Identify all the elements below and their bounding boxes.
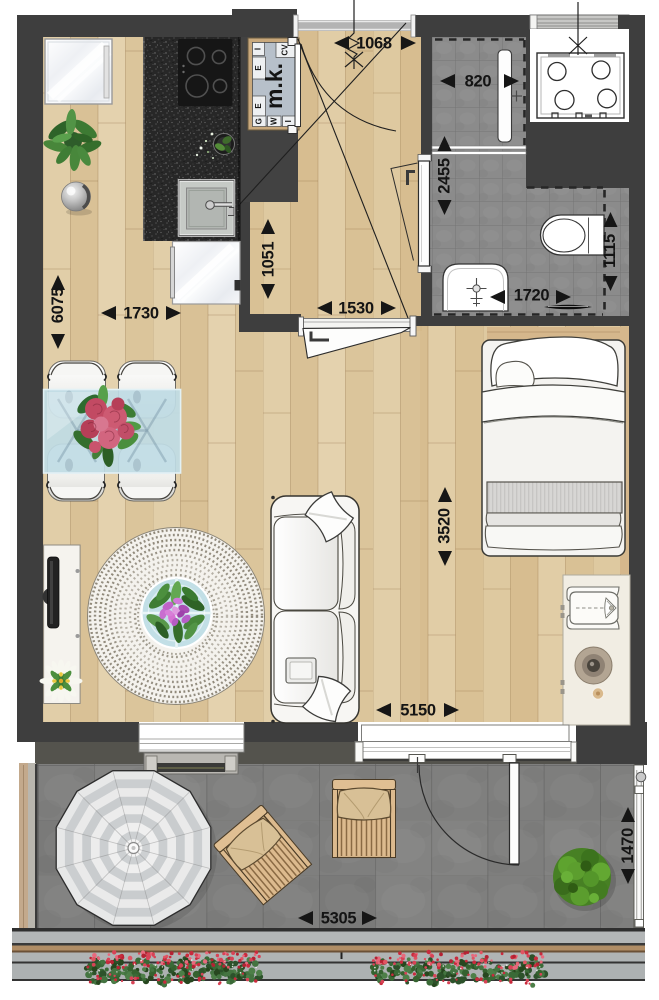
svg-text:2455: 2455 xyxy=(436,158,454,194)
svg-text:1530: 1530 xyxy=(338,300,374,318)
svg-text:6075: 6075 xyxy=(49,288,67,324)
svg-text:I: I xyxy=(254,48,263,50)
svg-text:3520: 3520 xyxy=(436,508,454,544)
svg-text:W: W xyxy=(269,117,278,125)
svg-text:1730: 1730 xyxy=(123,305,159,323)
svg-text:I: I xyxy=(284,120,293,122)
svg-text:1068: 1068 xyxy=(356,35,392,53)
svg-text:m.k.: m.k. xyxy=(261,63,287,109)
svg-text:1720: 1720 xyxy=(514,287,550,305)
svg-text:5150: 5150 xyxy=(400,702,436,720)
svg-text:1470: 1470 xyxy=(619,828,637,864)
svg-text:820: 820 xyxy=(465,73,492,91)
svg-text:G: G xyxy=(254,118,263,124)
svg-text:1115: 1115 xyxy=(601,234,619,268)
svg-text:1051: 1051 xyxy=(260,242,278,278)
svg-text:5305: 5305 xyxy=(321,910,357,928)
